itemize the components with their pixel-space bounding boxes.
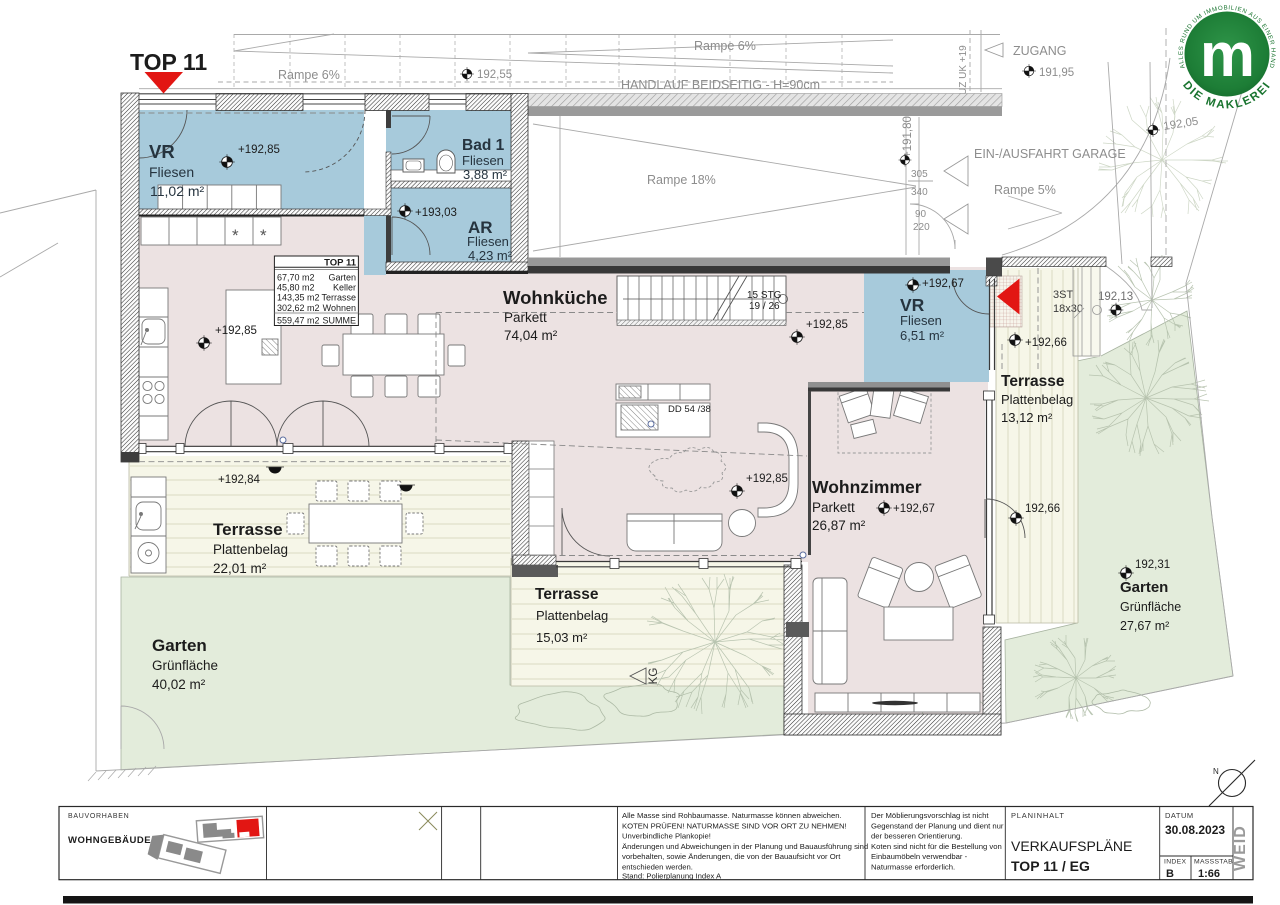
svg-text:143,35 m2: 143,35 m2 [277, 293, 320, 303]
svg-text:13,12 m²: 13,12 m² [1001, 410, 1053, 425]
svg-text:74,04 m²: 74,04 m² [504, 328, 558, 343]
svg-text:Rampe 6%: Rampe 6% [278, 68, 340, 82]
svg-text:45,80 m2: 45,80 m2 [277, 283, 315, 293]
svg-text:Rampe 18%: Rampe 18% [647, 173, 716, 187]
svg-text:191,95: 191,95 [1039, 67, 1074, 79]
svg-text:Wohnküche: Wohnküche [503, 287, 608, 308]
svg-text:VR: VR [149, 141, 175, 162]
svg-text:Terrasse: Terrasse [535, 586, 599, 603]
svg-text:Plattenbelag: Plattenbelag [536, 608, 608, 623]
svg-text:N: N [1213, 767, 1219, 776]
svg-text:PLANINHALT: PLANINHALT [1011, 811, 1065, 820]
svg-text:Terrasse: Terrasse [213, 520, 283, 539]
svg-text:30.08.2023: 30.08.2023 [1165, 823, 1225, 837]
svg-text:BAUVORHABEN: BAUVORHABEN [68, 813, 129, 820]
svg-text:+192,85: +192,85 [238, 144, 280, 156]
svg-text:Naturmasse erforderlich.: Naturmasse erforderlich. [871, 863, 955, 872]
svg-text:302,62 m2: 302,62 m2 [277, 303, 320, 313]
svg-text:ZUGANG: ZUGANG [1013, 44, 1066, 58]
svg-text:der besseren Orientierung.: der besseren Orientierung. [871, 832, 962, 841]
svg-text:+192,85: +192,85 [746, 473, 788, 485]
svg-text:DD 54 /38: DD 54 /38 [668, 404, 711, 415]
svg-text:Fliesen: Fliesen [462, 153, 504, 168]
svg-text:Alle Masse sind Rohbaumasse. N: Alle Masse sind Rohbaumasse. Naturmasse … [622, 811, 842, 820]
svg-text:559,47 m2: 559,47 m2 [277, 315, 320, 325]
svg-text:Fliesen: Fliesen [467, 234, 509, 249]
svg-text:VERKAUFSPLÄNE: VERKAUFSPLÄNE [1011, 838, 1132, 854]
svg-text:67,70 m2: 67,70 m2 [277, 273, 315, 283]
svg-text:Terrasse: Terrasse [321, 293, 356, 303]
svg-text:Garten: Garten [1120, 579, 1168, 596]
svg-text:340: 340 [911, 187, 928, 198]
svg-text:DATUM: DATUM [1165, 811, 1194, 820]
svg-text:Parkett: Parkett [504, 310, 547, 325]
svg-text:+192,67: +192,67 [922, 278, 964, 290]
svg-text:KG: KG [648, 668, 660, 685]
svg-text:INDEX: INDEX [1164, 859, 1186, 866]
svg-text:3,88 m²: 3,88 m² [463, 167, 508, 182]
svg-text:6,51 m²: 6,51 m² [900, 328, 945, 343]
svg-text:3ST: 3ST [1053, 289, 1073, 301]
svg-text:305: 305 [911, 169, 928, 180]
svg-text:+193,03: +193,03 [415, 207, 457, 219]
svg-text:15,03 m²: 15,03 m² [536, 630, 588, 645]
svg-text:m: m [1200, 21, 1254, 90]
svg-text:192,66: 192,66 [1025, 503, 1060, 515]
svg-text:Grünfläche: Grünfläche [1120, 600, 1181, 614]
svg-text:Garten: Garten [328, 273, 356, 283]
svg-text:1:66: 1:66 [1198, 868, 1220, 880]
svg-text:Wohnzimmer: Wohnzimmer [812, 477, 922, 497]
svg-text:+192,67: +192,67 [893, 503, 935, 515]
svg-text:Der Möblierungsvorschlag ist n: Der Möblierungsvorschlag ist nicht [871, 811, 989, 820]
svg-text:Stand: Polierplanung Index A: Stand: Polierplanung Index A [622, 872, 722, 881]
svg-text:192,13: 192,13 [1098, 291, 1133, 303]
svg-text:Gegenstand der Planung und die: Gegenstand der Planung und dient nur [871, 821, 1004, 830]
svg-text:WEID: WEID [1232, 825, 1249, 871]
svg-text:Plattenbelag: Plattenbelag [213, 542, 288, 557]
svg-text:VR: VR [900, 295, 925, 315]
svg-text:B: B [1166, 868, 1174, 880]
svg-text:Fliesen: Fliesen [149, 164, 194, 180]
svg-text:90: 90 [915, 209, 927, 220]
svg-text:Fliesen: Fliesen [900, 313, 942, 328]
svg-text:*: * [232, 226, 239, 245]
svg-text:Rampe 5%: Rampe 5% [994, 183, 1056, 197]
svg-text:vorbehalten, sowie Änderungen,: vorbehalten, sowie Änderungen, die von d… [622, 852, 841, 861]
svg-text:Garten: Garten [152, 636, 207, 655]
svg-text:*: * [260, 226, 267, 245]
svg-text:WOHNGEBÄUDE: WOHNGEBÄUDE [68, 835, 151, 846]
svg-text:+191,80: +191,80 [902, 116, 914, 158]
svg-text:Keller: Keller [333, 283, 356, 293]
svg-text:entschieden werden.: entschieden werden. [622, 863, 693, 872]
svg-text:Koten sind nicht für die Beste: Koten sind nicht für die Bestellung von [871, 842, 1002, 851]
svg-text:+192,85: +192,85 [215, 325, 257, 337]
svg-text:Wohnen: Wohnen [323, 303, 356, 313]
svg-text:27,67 m²: 27,67 m² [1120, 619, 1169, 633]
svg-text:KOTEN PRÜFEN! NATURMASSE SIND: KOTEN PRÜFEN! NATURMASSE SIND VOR ORT ZU… [622, 821, 847, 830]
svg-text:40,02 m²: 40,02 m² [152, 677, 206, 692]
svg-text:MASSSTAB: MASSSTAB [1194, 859, 1233, 866]
svg-text:EIN-/AUSFAHRT GARAGE: EIN-/AUSFAHRT GARAGE [974, 147, 1126, 161]
svg-text:4,23 m²: 4,23 m² [468, 248, 513, 263]
svg-text:Unverbindliche Plankopie!: Unverbindliche Plankopie! [622, 832, 711, 841]
svg-text:HANDLAUF BEIDSEITIG - H=90cm: HANDLAUF BEIDSEITIG - H=90cm [621, 78, 820, 92]
svg-text:15 STG: 15 STG [747, 290, 782, 301]
svg-text:Rampe 6%: Rampe 6% [694, 39, 756, 53]
svg-text:22,01 m²: 22,01 m² [213, 561, 267, 576]
svg-text:192,31: 192,31 [1135, 559, 1170, 571]
svg-text:Einbaumöbeln verwendbar -: Einbaumöbeln verwendbar - [871, 852, 968, 861]
svg-text:Plattenbelag: Plattenbelag [1001, 392, 1073, 407]
svg-text:11,02 m²: 11,02 m² [150, 183, 205, 199]
svg-text:+192,85: +192,85 [806, 319, 848, 331]
svg-text:220: 220 [913, 222, 930, 233]
svg-text:26,87 m²: 26,87 m² [812, 518, 866, 533]
svg-text:192,55: 192,55 [477, 69, 512, 81]
svg-text:TOP 11 / EG: TOP 11 / EG [1011, 858, 1090, 874]
svg-text:Grünfläche: Grünfläche [152, 658, 218, 673]
svg-text:19 / 26: 19 / 26 [749, 301, 780, 312]
svg-text:+192,66: +192,66 [1025, 337, 1067, 349]
svg-text:TOP 11: TOP 11 [324, 258, 357, 269]
svg-text:Parkett: Parkett [812, 500, 855, 515]
svg-text:TOP 11: TOP 11 [130, 49, 207, 75]
svg-text:Änderungen und Abweichungen in: Änderungen und Abweichungen in der Planu… [622, 842, 868, 851]
svg-text:UZ UK +19: UZ UK +19 [958, 45, 969, 95]
svg-text:Terrasse: Terrasse [1001, 373, 1065, 390]
svg-text:Bad 1: Bad 1 [462, 137, 505, 154]
svg-text:+192,84: +192,84 [218, 474, 260, 486]
svg-text:SUMME: SUMME [323, 315, 357, 325]
